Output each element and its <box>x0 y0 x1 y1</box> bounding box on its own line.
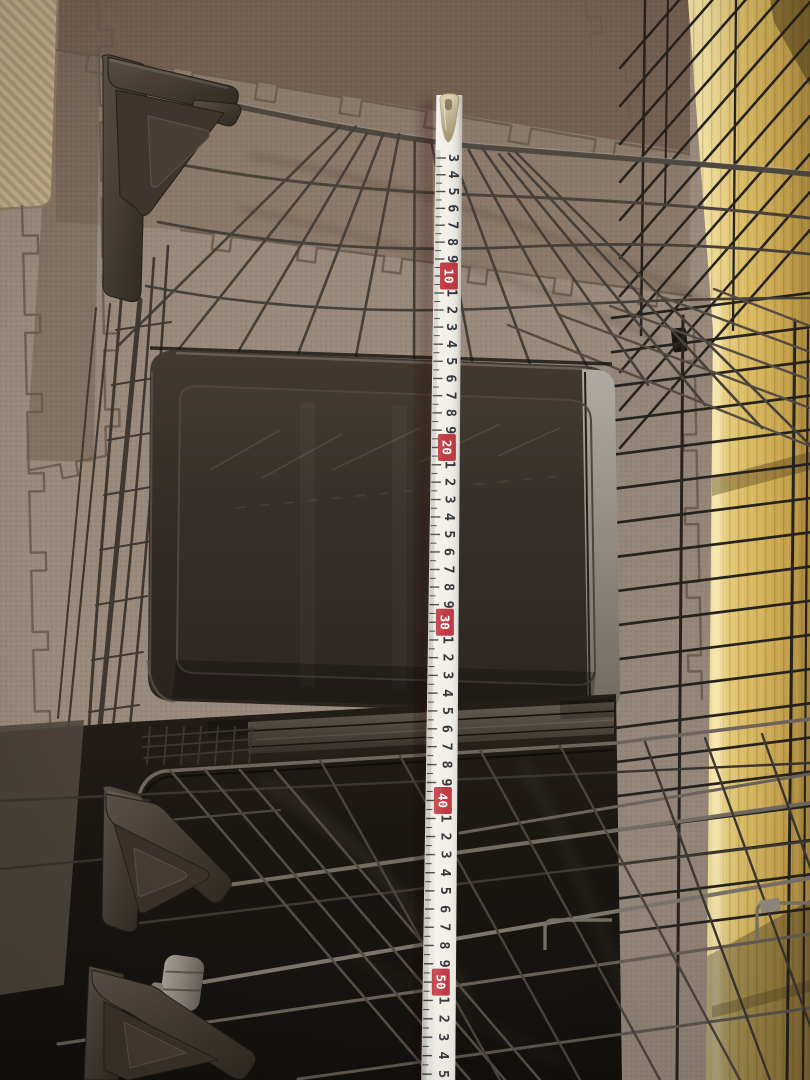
photo-canvas: 3456789101234567892012345678930123456789… <box>0 0 810 1080</box>
cage-photo: 3456789101234567892012345678930123456789… <box>0 0 810 1080</box>
vignette <box>0 0 810 1080</box>
